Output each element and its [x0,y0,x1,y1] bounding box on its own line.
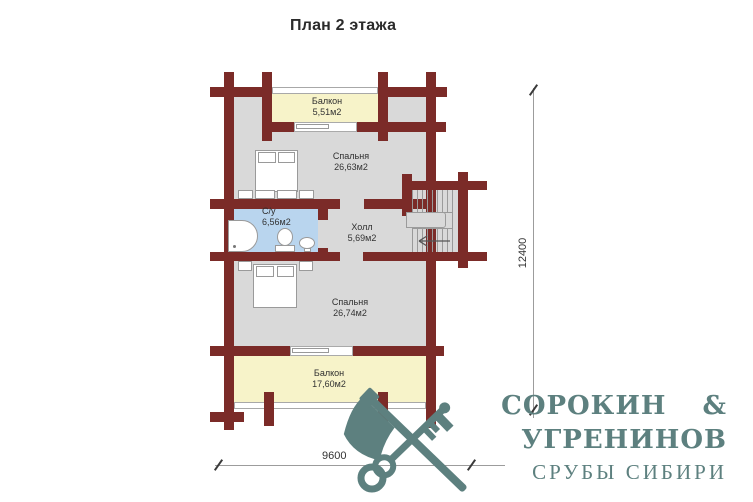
logo-line-3: СРУБЫ СИБИРИ [487,457,727,488]
dimension-width-value: 9600 [322,450,346,462]
balcony1-railing [272,87,378,94]
logo-line-1: СОРОКИН & [487,389,727,423]
nightstand-icon [299,190,314,199]
stairs-arrow-icon [412,230,456,252]
nightstand-icon [238,261,252,271]
dresser-icon [277,190,297,199]
hall-label: Холл 5,69м2 [348,222,377,244]
logo-line-2: УГРЕНИНОВ [487,423,727,457]
nightstand-icon [299,261,313,271]
wall-top-right [378,87,447,97]
axe-icon [332,387,471,502]
wall-balcony1-inner-left [262,122,294,132]
dresser-icon [255,190,275,199]
balcony2-post-left [264,392,274,426]
bathroom-label: С/у 6,56м2 [262,206,291,228]
wall-balcony1-inner-right [357,122,446,132]
logo: СОРОКИН & УГРЕНИНОВ СРУБЫ СИБИРИ [487,389,727,488]
wall-stair-ext-top [404,181,487,190]
wall-top-left [210,87,272,97]
wall-bath-hall-bottom-left [210,252,340,261]
dimension-height-value: 12400 [517,233,529,273]
balcony2-label: Балкон 17,60м2 [312,368,346,390]
bedroom2-label: Спальня 26,74м2 [332,297,368,319]
balcony1-label: Балкон 5,51м2 [312,96,342,118]
wall-stub-bottom-left [210,412,244,422]
balcony1-window [296,124,329,129]
wall-balcony2-inner-left [210,346,290,356]
shower-drain [233,245,236,248]
bedroom1-label: Спальня 26,63м2 [333,151,369,173]
stairs-landing [406,212,446,228]
wall-bath-hall-bottom-right [363,252,487,261]
balcony2-window [292,348,329,353]
nightstand-icon [238,190,253,199]
